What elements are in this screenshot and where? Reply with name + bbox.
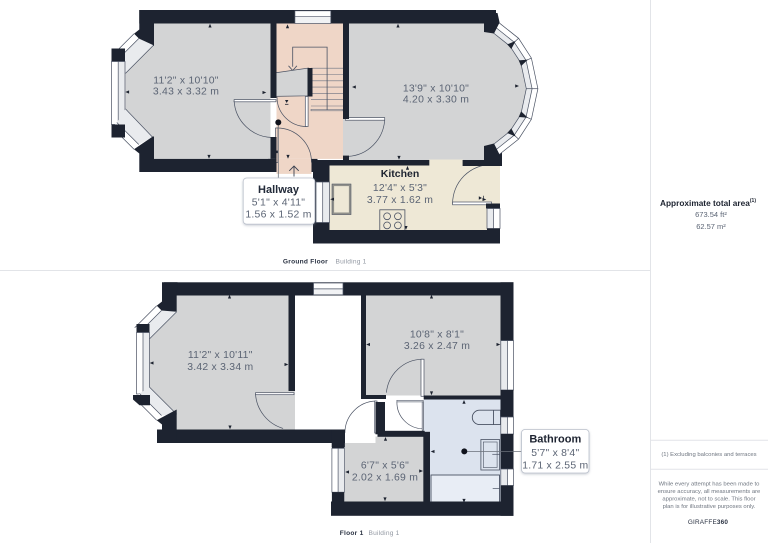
svg-text:6'7" x 5'6": 6'7" x 5'6" [361,461,409,472]
svg-text:12'4" x 5'3": 12'4" x 5'3" [373,183,427,194]
svg-text:3.77 x 1.62 m: 3.77 x 1.62 m [367,195,433,206]
svg-text:Hallway: Hallway [258,184,300,196]
svg-text:2.02 x 1.69 m: 2.02 x 1.69 m [352,473,418,484]
svg-text:3.42 x 3.34 m: 3.42 x 3.34 m [187,362,253,373]
svg-text:1.71 x 2.55 m: 1.71 x 2.55 m [522,460,588,471]
svg-text:Kitchen: Kitchen [381,168,420,180]
svg-text:Bathroom: Bathroom [529,433,581,445]
svg-text:GIRAFFE360: GIRAFFE360 [688,519,729,526]
svg-text:plan is for illustrative purpo: plan is for illustrative purposes only. [663,504,756,510]
svg-text:Building 1: Building 1 [369,530,400,537]
svg-text:10'8" x 8'1": 10'8" x 8'1" [410,330,464,341]
svg-text:Approximate total area(1): Approximate total area(1) [660,198,756,208]
svg-text:3.43 x 3.32 m: 3.43 x 3.32 m [153,87,219,98]
svg-text:5'7" x 8'4": 5'7" x 8'4" [531,448,579,459]
svg-text:ensure accuracy, all measureme: ensure accuracy, all measurements are [658,489,761,495]
svg-text:13'9" x 10'10": 13'9" x 10'10" [403,84,469,95]
svg-text:11'2" x 10'10": 11'2" x 10'10" [153,76,219,87]
svg-text:Building 1: Building 1 [336,258,367,265]
svg-text:4.20 x 3.30 m: 4.20 x 3.30 m [403,95,469,106]
svg-text:5'1" x 4'11": 5'1" x 4'11" [252,198,305,209]
svg-text:3.26 x 2.47 m: 3.26 x 2.47 m [404,341,470,352]
svg-text:62.57 m²: 62.57 m² [696,222,726,231]
svg-text:673.54 ft²: 673.54 ft² [695,210,727,219]
svg-text:Ground Floor: Ground Floor [283,258,328,265]
svg-text:1.56 x 1.52 m: 1.56 x 1.52 m [245,210,311,221]
svg-text:Floor 1: Floor 1 [340,530,364,537]
svg-text:(1) Excluding balconies and te: (1) Excluding balconies and terraces [661,452,756,458]
svg-text:11'2" x 10'11": 11'2" x 10'11" [188,350,253,361]
svg-text:While every attempt has been m: While every attempt has been made to [659,482,761,488]
svg-text:approximate, not to scale. Thi: approximate, not to scale. This floor [662,497,755,503]
